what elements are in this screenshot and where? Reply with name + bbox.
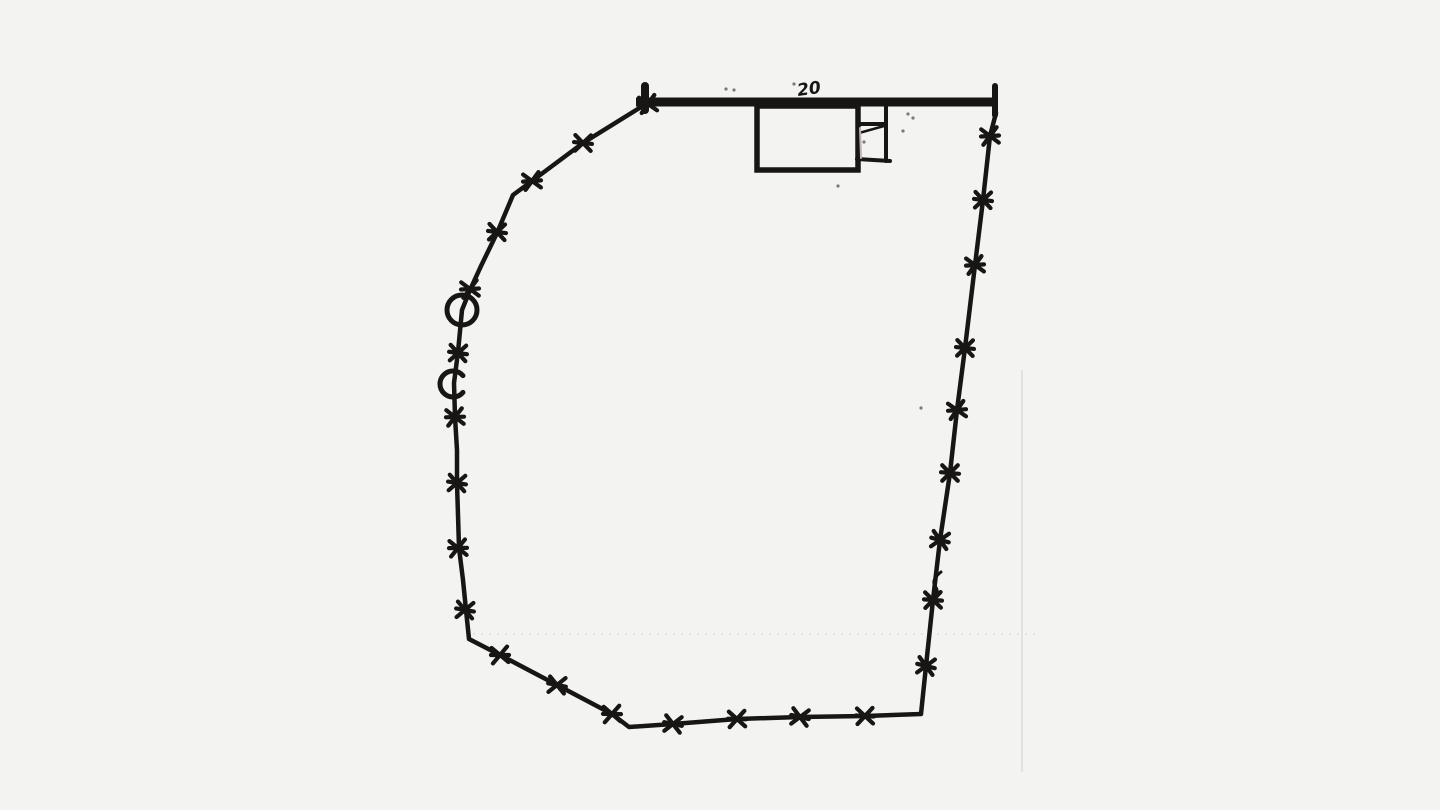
ink-speck [919, 406, 922, 409]
post-stroke [948, 408, 966, 413]
fence-post-mark [602, 706, 621, 723]
post-stroke [981, 134, 999, 138]
post-stroke [449, 352, 467, 355]
post-stroke [974, 199, 992, 201]
post-stroke [728, 718, 746, 721]
annex-diagonal-stroke [859, 126, 884, 133]
ink-speck [792, 82, 795, 85]
post-stroke [966, 263, 984, 267]
survey-circle-open [440, 371, 463, 397]
sketch-canvas: 20 [0, 0, 1440, 810]
dimension-label: 20 [796, 78, 822, 101]
building-outline [757, 106, 858, 170]
post-stroke [924, 599, 942, 601]
post-stroke [941, 472, 959, 474]
fence-post-mark [663, 715, 683, 733]
post-stroke [603, 713, 621, 716]
ink-speck [906, 112, 909, 115]
post-stroke [856, 715, 874, 717]
fence-post-mark [790, 708, 810, 726]
post-stroke [488, 231, 506, 233]
ink-speck [836, 184, 839, 187]
ink-speck [862, 140, 865, 143]
fence-post-mark [490, 646, 509, 663]
fence-post-mark [522, 172, 542, 190]
annex-bottom-wall [857, 159, 890, 161]
post-stroke [917, 664, 935, 668]
fence-post-mark [856, 708, 875, 724]
ink-speck [732, 88, 735, 91]
post-stroke [456, 608, 474, 611]
site-plan-sketch: 20 [0, 0, 1440, 810]
ink-speck [901, 129, 904, 132]
post-stroke [491, 653, 509, 656]
fence-post-mark [728, 711, 747, 727]
post-stroke [548, 683, 566, 686]
post-stroke [448, 482, 466, 485]
post-stroke [574, 142, 592, 144]
annex-pencil-mark [860, 128, 861, 158]
post-stroke [461, 287, 479, 291]
fence-post-mark [547, 676, 566, 693]
ink-speck [724, 87, 727, 90]
fence-post-mark [574, 135, 592, 151]
post-stroke [523, 179, 541, 183]
post-stroke [931, 538, 949, 543]
post-stroke [449, 546, 467, 549]
post-stroke [956, 347, 974, 349]
post-stroke [446, 415, 464, 419]
ink-speck [911, 116, 914, 119]
